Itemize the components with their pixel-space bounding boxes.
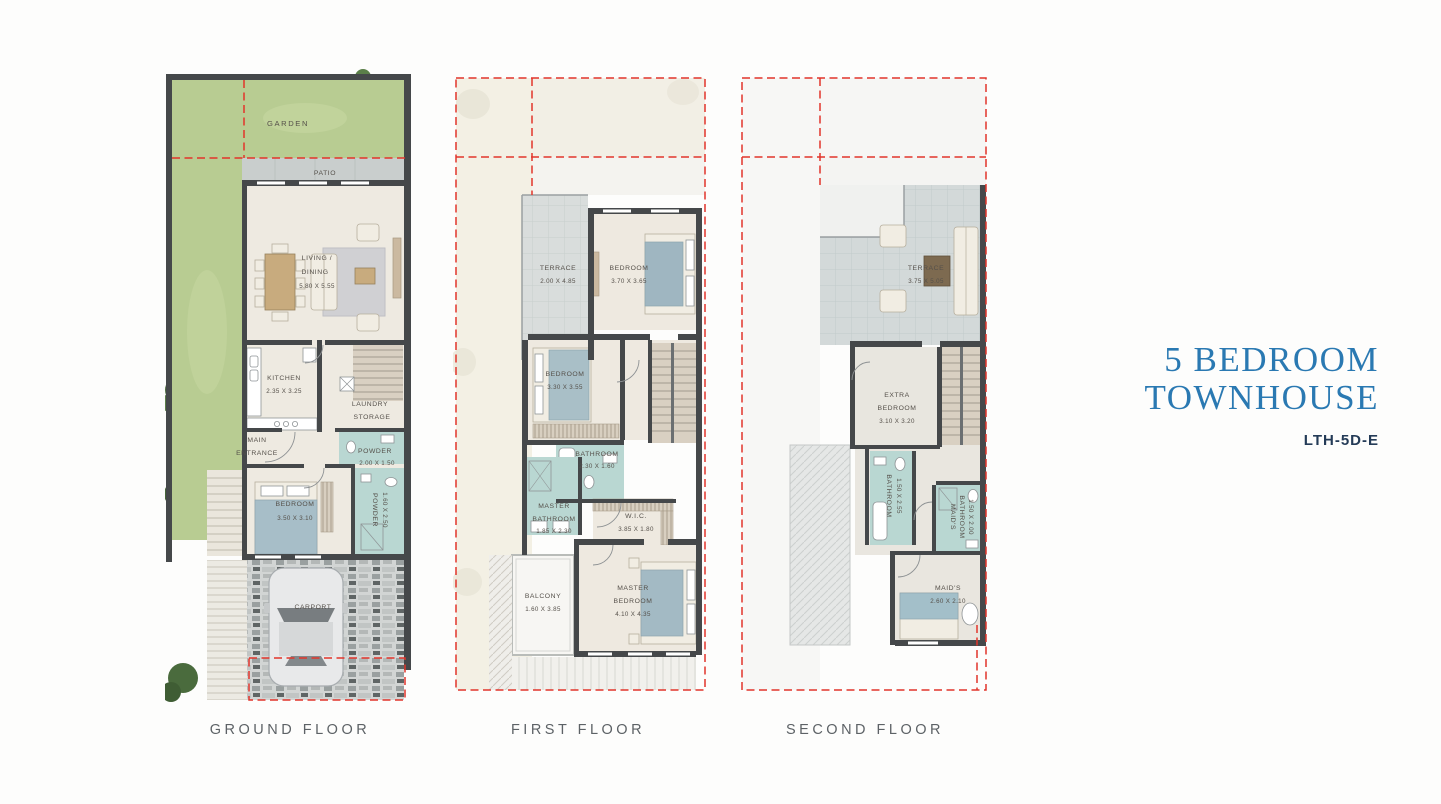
terrace-area <box>820 185 986 345</box>
car <box>264 568 348 686</box>
room-label-laundry-2: STORAGE <box>354 414 391 421</box>
staircase <box>942 347 982 445</box>
bedroom-1 <box>588 214 696 330</box>
room-label-bathroom: BATHROOM <box>885 474 892 517</box>
room-dims-bathroom: 2.30 X 1.60 <box>579 463 615 470</box>
powder-room-2 <box>355 468 404 554</box>
room-dims-master-bed: 4.10 X 4.35 <box>615 611 651 618</box>
room-dims-bathroom: 1.50 X 2.55 <box>895 478 902 514</box>
room-dims-bedroom: 3.50 X 3.10 <box>277 515 313 522</box>
room-label-master-bed-2: BEDROOM <box>614 598 653 605</box>
room-label-wic: W.I.C. <box>625 513 647 520</box>
roof-hatch <box>790 445 850 645</box>
room-label-extra-bedroom-2: BEDROOM <box>878 405 917 412</box>
title-block: 5 BEDROOM TOWNHOUSE LTH-5D-E <box>1144 341 1379 449</box>
room-dims-living-dining: 5.80 X 5.55 <box>299 283 335 290</box>
first-floor-caption: FIRST FLOOR <box>453 722 703 742</box>
room-label-living-dining-2: DINING <box>301 269 328 276</box>
room-label-terrace: TERRACE <box>908 265 944 272</box>
room-dims-terrace: 2.00 X 4.85 <box>540 278 576 285</box>
room-dims-master-bath: 1.85 X 2.30 <box>536 528 572 535</box>
room-label-powder: POWDER <box>358 448 392 455</box>
ground-floor-plan: GARDEN PATIO LIVING / DINING 5.80 X 5.55… <box>165 62 415 707</box>
room-label-bedroom-1: BEDROOM <box>610 265 649 272</box>
room-label-carport: CARPORT <box>295 604 332 611</box>
room-label-powder-2: POWDER <box>371 493 378 527</box>
room-label-bedroom-2: BEDROOM <box>546 371 585 378</box>
room-label-maids-bath-1: MAID'S <box>949 504 956 530</box>
side-hatch <box>489 555 512 690</box>
room-label-maids-bath-2: BATHROOM <box>958 495 965 538</box>
room-label-bedroom: BEDROOM <box>276 501 315 508</box>
room-dims-balcony: 1.60 X 3.85 <box>525 606 561 613</box>
ground-floor-caption: GROUND FLOOR <box>165 722 415 742</box>
second-floor-plan: TERRACE 3.75 X 5.05 EXTRA BEDROOM 3.10 X… <box>740 62 990 707</box>
room-label-terrace: TERRACE <box>540 265 576 272</box>
side-stairs <box>207 470 247 700</box>
room-label-master-bath-2: BATHROOM <box>532 516 575 523</box>
room-dims-powder-2: 1.60 X 2.50 <box>381 492 388 528</box>
room-dims-maids-bath: 1.50 X 2.00 <box>967 499 974 535</box>
staircase <box>620 340 696 443</box>
room-label-entrance-2: ENTRANCE <box>236 450 278 457</box>
balcony-area <box>512 555 574 655</box>
room-label-kitchen: KITCHEN <box>267 375 301 382</box>
room-dims-maids: 2.60 X 2.10 <box>930 598 966 605</box>
bottom-deck <box>512 657 696 690</box>
wic-room <box>593 499 673 545</box>
page-title-line-2: TOWNHOUSE <box>1144 379 1379 417</box>
first-floor-plan: TERRACE 2.00 X 4.85 BEDROOM 3.70 X 3.65 … <box>453 62 708 707</box>
carport-area <box>247 560 404 700</box>
page-title-line-1: 5 BEDROOM <box>1144 341 1379 379</box>
floorplan-brochure: GARDEN PATIO LIVING / DINING 5.80 X 5.55… <box>0 0 1441 804</box>
room-dims-powder: 2.00 X 1.50 <box>359 460 395 467</box>
room-label-garden: GARDEN <box>267 119 309 128</box>
second-floor-caption: SECOND FLOOR <box>740 722 990 742</box>
room-dims-wic: 3.85 X 1.80 <box>618 526 654 533</box>
room-dims-bedroom-1: 3.70 X 3.65 <box>611 278 647 285</box>
room-dims-bedroom-2: 3.30 X 3.55 <box>547 384 583 391</box>
unit-type-code: LTH-5D-E <box>1144 432 1379 449</box>
room-label-master-bed-1: MASTER <box>617 585 649 592</box>
room-label-living-dining-1: LIVING / <box>302 255 332 262</box>
master-bathroom <box>526 457 578 535</box>
room-label-balcony: BALCONY <box>525 593 561 600</box>
room-dims-terrace: 3.75 X 5.05 <box>908 278 944 285</box>
room-dims-kitchen: 2.35 X 3.25 <box>266 388 302 395</box>
room-dims-extra-bedroom: 3.10 X 3.20 <box>879 418 915 425</box>
room-label-extra-bedroom-1: EXTRA <box>884 392 909 399</box>
room-label-laundry-1: LAUNDRY <box>352 401 388 408</box>
room-label-master-bath-1: MASTER <box>538 503 570 510</box>
room-label-maids: MAID'S <box>935 585 961 592</box>
room-label-entrance-1: MAIN <box>247 437 266 444</box>
room-label-bathroom: BATHROOM <box>575 451 618 458</box>
room-label-patio: PATIO <box>314 170 336 177</box>
